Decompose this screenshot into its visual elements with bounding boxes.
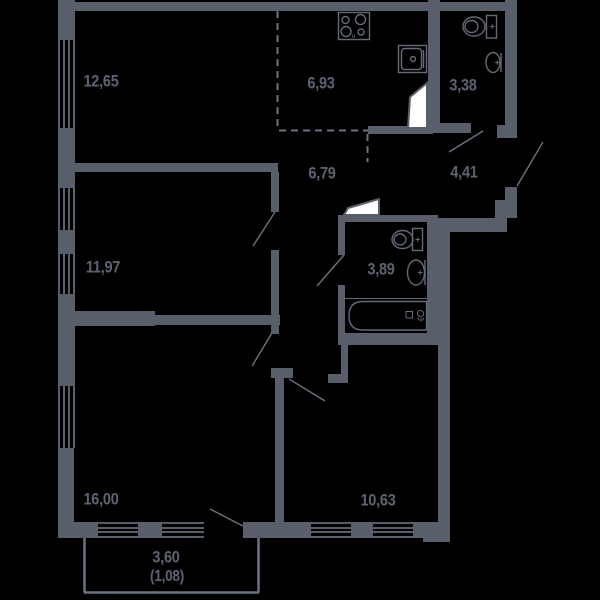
washbasin-icon xyxy=(486,53,501,73)
window xyxy=(98,522,138,538)
wall-segment xyxy=(351,522,373,538)
kitchen-door-leaf xyxy=(408,83,427,128)
bathtub-icon xyxy=(345,299,427,331)
hall-door-leaf xyxy=(344,199,379,215)
area-label-room-top-left: 12,65 xyxy=(83,73,118,92)
wall-segment xyxy=(75,163,278,172)
wall-segment xyxy=(505,187,517,205)
area-label-kitchen: 6,93 xyxy=(307,75,334,94)
area-label-room-middle-left: 11,97 xyxy=(86,259,120,278)
floor-plan: н xyxy=(0,0,600,600)
area-label-balcony-reduced: (1,08) xyxy=(150,568,184,586)
wall-segment xyxy=(338,333,450,345)
wall-segment xyxy=(497,125,517,138)
room-middle-door-swing xyxy=(253,212,275,246)
window xyxy=(58,386,75,448)
entry-door-swing xyxy=(517,142,543,186)
kitchen-sink-icon xyxy=(399,46,427,73)
wall-segment xyxy=(58,0,75,40)
wall-segment xyxy=(271,368,293,378)
wall-segment xyxy=(275,378,284,522)
balcony-door-swing xyxy=(210,509,243,526)
wall-segment xyxy=(271,325,279,334)
wall-segment xyxy=(338,285,345,337)
wall-segment xyxy=(58,128,75,188)
wall-segment xyxy=(423,522,450,542)
wall-segment xyxy=(271,172,279,212)
area-label-hallway: 6,79 xyxy=(308,165,335,184)
room-bottom-right-door-swing xyxy=(289,379,325,401)
wall-segment xyxy=(58,230,75,254)
area-label-room-bottom-left: 16,00 xyxy=(83,491,118,510)
wall-segment xyxy=(430,218,507,232)
toilet-icon xyxy=(392,229,423,251)
wall-segment xyxy=(341,345,348,378)
wall-segment xyxy=(58,522,98,538)
wall-segment xyxy=(285,522,311,538)
wall-segment xyxy=(338,220,345,255)
wall-segment xyxy=(138,522,162,538)
window xyxy=(311,522,351,538)
toilet-icon xyxy=(463,16,497,39)
wall-segment xyxy=(58,294,75,386)
area-label-room-bottom-right: 10,63 xyxy=(360,492,395,511)
wall-segment xyxy=(368,126,433,134)
wall-segment xyxy=(338,215,438,222)
wall-segment xyxy=(427,222,438,345)
wall-segment xyxy=(243,522,285,538)
window xyxy=(58,40,75,128)
bathroom-large-door-swing xyxy=(317,255,344,286)
wall-segment xyxy=(58,2,517,11)
window xyxy=(58,188,75,230)
wall-segment xyxy=(428,0,440,129)
wall-segment xyxy=(438,218,450,522)
area-label-entry-corridor: 4,41 xyxy=(450,164,477,183)
area-label-bathroom-large: 3,89 xyxy=(367,261,394,280)
wall-segment xyxy=(155,315,280,325)
wall-segment xyxy=(75,311,155,326)
washbasin-icon xyxy=(408,260,426,285)
stove-mark: н xyxy=(352,34,355,40)
window xyxy=(373,522,413,538)
wall-segment xyxy=(505,0,517,138)
bathroom-small-door-swing xyxy=(449,131,483,152)
stove-icon: н xyxy=(339,13,370,41)
window xyxy=(162,522,204,538)
window xyxy=(58,254,75,294)
wall-segment xyxy=(271,250,279,325)
area-label-bathroom-small: 3,38 xyxy=(449,77,476,96)
wall-segment xyxy=(433,123,471,133)
area-label-balcony: 3,60 xyxy=(152,549,179,568)
door-swings xyxy=(210,131,543,526)
room-bottom-left-door-swing xyxy=(252,333,272,366)
